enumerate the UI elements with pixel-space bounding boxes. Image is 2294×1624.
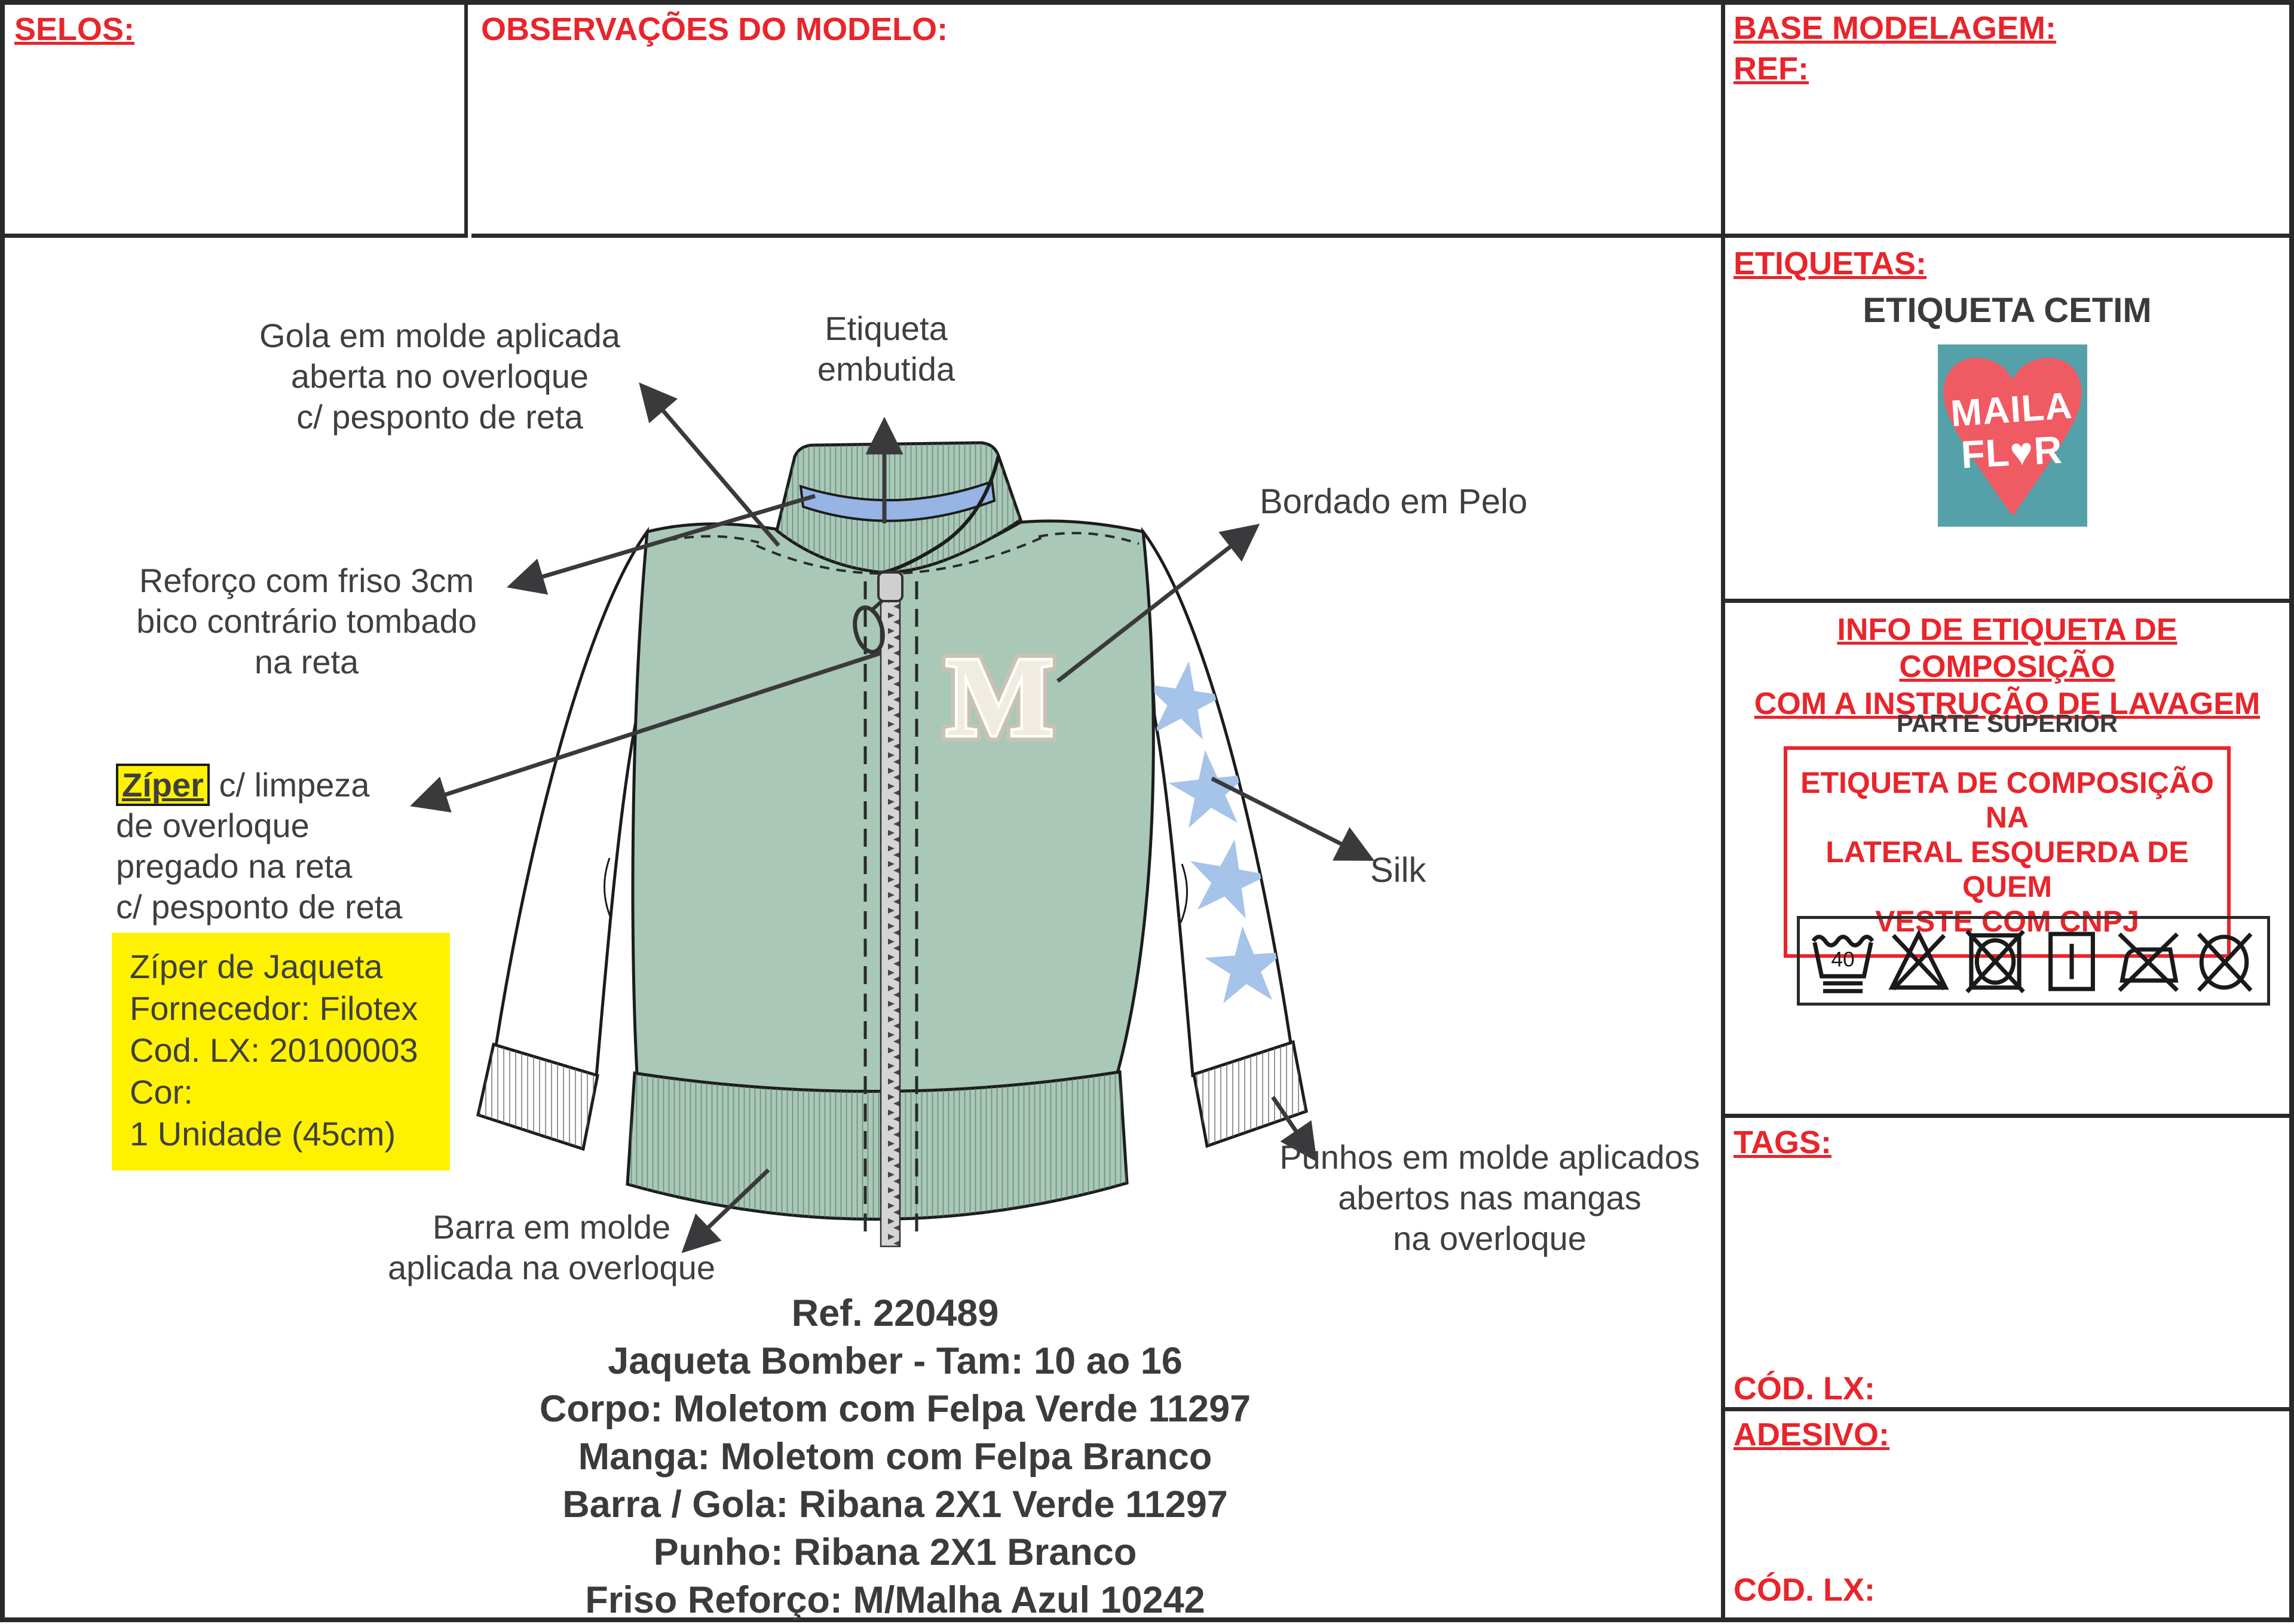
etiqueta-cetim-title: ETIQUETA CETIM	[1725, 290, 2289, 330]
logo-line1: MAILA	[1949, 385, 2074, 435]
observacoes-cell: OBSERVAÇÕES DO MODELO:	[471, 5, 1721, 238]
barra-note: Barra em molde aplicada na overloque	[357, 1207, 746, 1288]
ziper-note: Zíper c/ limpeza de overloque pregado na…	[116, 765, 498, 927]
ziper-highlight: Zíper	[116, 764, 210, 806]
etiquetas-label: ETIQUETAS:	[1733, 245, 1927, 282]
tags-label: TAGS:	[1733, 1124, 1831, 1161]
svg-text:40: 40	[1831, 948, 1854, 971]
bordado-note: Bordado em Pelo	[1260, 482, 1570, 522]
right-column: BASE MODELAGEM: REF: ETIQUETAS: ETIQUETA…	[1721, 5, 2289, 1617]
spec-block: Ref. 220489 Jaqueta Bomber - Tam: 10 ao …	[423, 1289, 1367, 1624]
base-modelagem-label: BASE MODELAGEM:	[1733, 10, 2281, 47]
cod-lx-label-2: CÓD. LX:	[1733, 1571, 1875, 1608]
etiquetas-section: ETIQUETAS: ETIQUETA CETIM MAILA FL♥R	[1725, 238, 2289, 603]
silk-note: Silk	[1370, 850, 1502, 891]
adesivo-label: ADESIVO:	[1733, 1416, 1889, 1453]
info-title: INFO DE ETIQUETA DE COMPOSIÇÃO COM A INS…	[1725, 611, 2289, 722]
ref-label: REF:	[1733, 50, 2281, 87]
do-not-bleach-icon	[1883, 926, 1954, 996]
cod-lx-label: CÓD. LX:	[1733, 1370, 1875, 1407]
observacoes-label: OBSERVAÇÕES DO MODELO:	[481, 11, 948, 47]
arrow-gola	[643, 387, 779, 546]
selos-cell: SELOS:	[5, 5, 468, 238]
wash-40-delicate-icon: 40	[1808, 926, 1878, 996]
ziper-spec-box: Zíper de Jaqueta Fornecedor: Filotex Cod…	[112, 933, 450, 1170]
maila-flor-logo: MAILA FL♥R	[1938, 344, 2087, 527]
reforco-note: Reforço com friso 3cm bico contrário tom…	[109, 560, 504, 682]
tech-pack-sheet: M M SELOS: OBSERVAÇÕES DO MODELO: Gola e…	[0, 0, 2294, 1622]
ziper-note-rest: de overloque pregado na reta c/ pesponto…	[116, 805, 498, 927]
do-not-tumble-dry-icon	[1960, 926, 2030, 996]
do-not-iron-icon	[2112, 926, 2183, 996]
composicao-info-section: INFO DE ETIQUETA DE COMPOSIÇÃO COM A INS…	[1725, 603, 2289, 1118]
sleeve-right	[1143, 532, 1306, 1146]
adesivo-section: ADESIVO: CÓD. LX:	[1725, 1411, 2289, 1609]
ziper-note-line1: Zíper c/ limpeza	[116, 765, 498, 805]
logo-line2: FL♥R	[1960, 428, 2064, 477]
zipper-slider	[878, 572, 902, 601]
gola-note: Gola em molde aplicada aberta no overloq…	[237, 315, 643, 437]
parte-superior-label: PARTE SUPERIOR	[1725, 709, 2289, 738]
drip-dry-icon	[2036, 926, 2107, 996]
punhos-note: Punhos em molde aplicados abertos nas ma…	[1254, 1137, 1726, 1259]
etiqueta-note: Etiqueta embutida	[782, 308, 991, 390]
care-symbols-box: 40	[1797, 916, 2270, 1006]
svg-text:M: M	[946, 635, 1053, 760]
selos-label: SELOS:	[14, 11, 134, 47]
hem-band	[627, 1072, 1127, 1219]
do-not-dry-clean-icon	[2189, 926, 2259, 996]
chest-patch-m: M M	[946, 635, 1053, 760]
base-modelagem-section: BASE MODELAGEM: REF:	[1725, 5, 2289, 238]
tags-section: TAGS: CÓD. LX:	[1725, 1118, 2289, 1411]
